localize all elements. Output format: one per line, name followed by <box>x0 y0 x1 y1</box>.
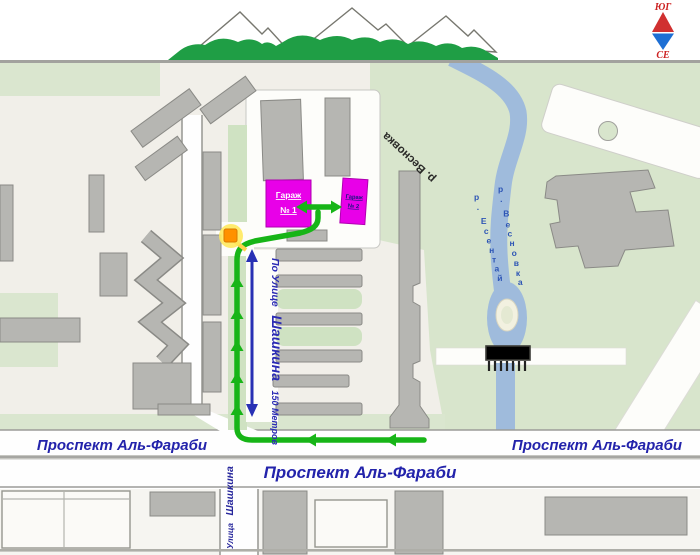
lawn <box>276 327 362 346</box>
route-map: Гараж № 1 Гараж № 2 По Улице Шашкин <box>0 0 700 555</box>
building <box>276 249 362 261</box>
building <box>545 497 687 535</box>
compass-south-label: ЮГ <box>654 2 673 13</box>
garage-2-label-line1: Гараж <box>345 194 364 201</box>
building <box>133 363 191 409</box>
green-patch <box>0 62 160 96</box>
embankment-path <box>436 348 626 365</box>
building <box>158 404 210 415</box>
building <box>203 235 221 315</box>
building <box>261 99 304 180</box>
avenue-label-left: Проспект Аль-Фараби <box>37 437 207 454</box>
bridge-piles <box>489 361 525 371</box>
top-divider <box>0 60 700 63</box>
building <box>276 350 362 362</box>
avenue-label-center: Проспект Аль-Фараби <box>264 463 457 482</box>
building <box>0 318 80 342</box>
building <box>325 98 350 176</box>
river-island-core <box>501 306 513 324</box>
avenue-label-right: Проспект Аль-Фараби <box>512 437 682 454</box>
garage-1-label-line2: № 1 <box>280 205 297 215</box>
lot-circle <box>599 122 618 141</box>
building <box>100 253 127 296</box>
lawn <box>276 289 362 309</box>
south-divider <box>0 549 700 552</box>
building <box>89 175 104 232</box>
top-band: ЮГ СЕ <box>0 0 700 63</box>
garage-1-label-line1: Гараж <box>276 190 302 200</box>
building <box>276 313 362 325</box>
bridge-deck <box>486 346 530 360</box>
building <box>395 491 443 554</box>
marker-square <box>224 229 237 242</box>
garage-2-label-line2: № 2 <box>348 203 360 210</box>
compass-north-label: СЕ <box>656 50 670 61</box>
building <box>203 152 221 230</box>
building <box>0 185 13 261</box>
building <box>276 275 362 287</box>
river-lower <box>496 363 515 431</box>
building <box>150 492 215 516</box>
garage-2-building: Гараж № 2 <box>340 178 368 225</box>
building <box>203 322 221 392</box>
building <box>276 403 362 415</box>
building <box>315 500 387 547</box>
south-block <box>0 489 700 555</box>
building <box>263 491 307 554</box>
